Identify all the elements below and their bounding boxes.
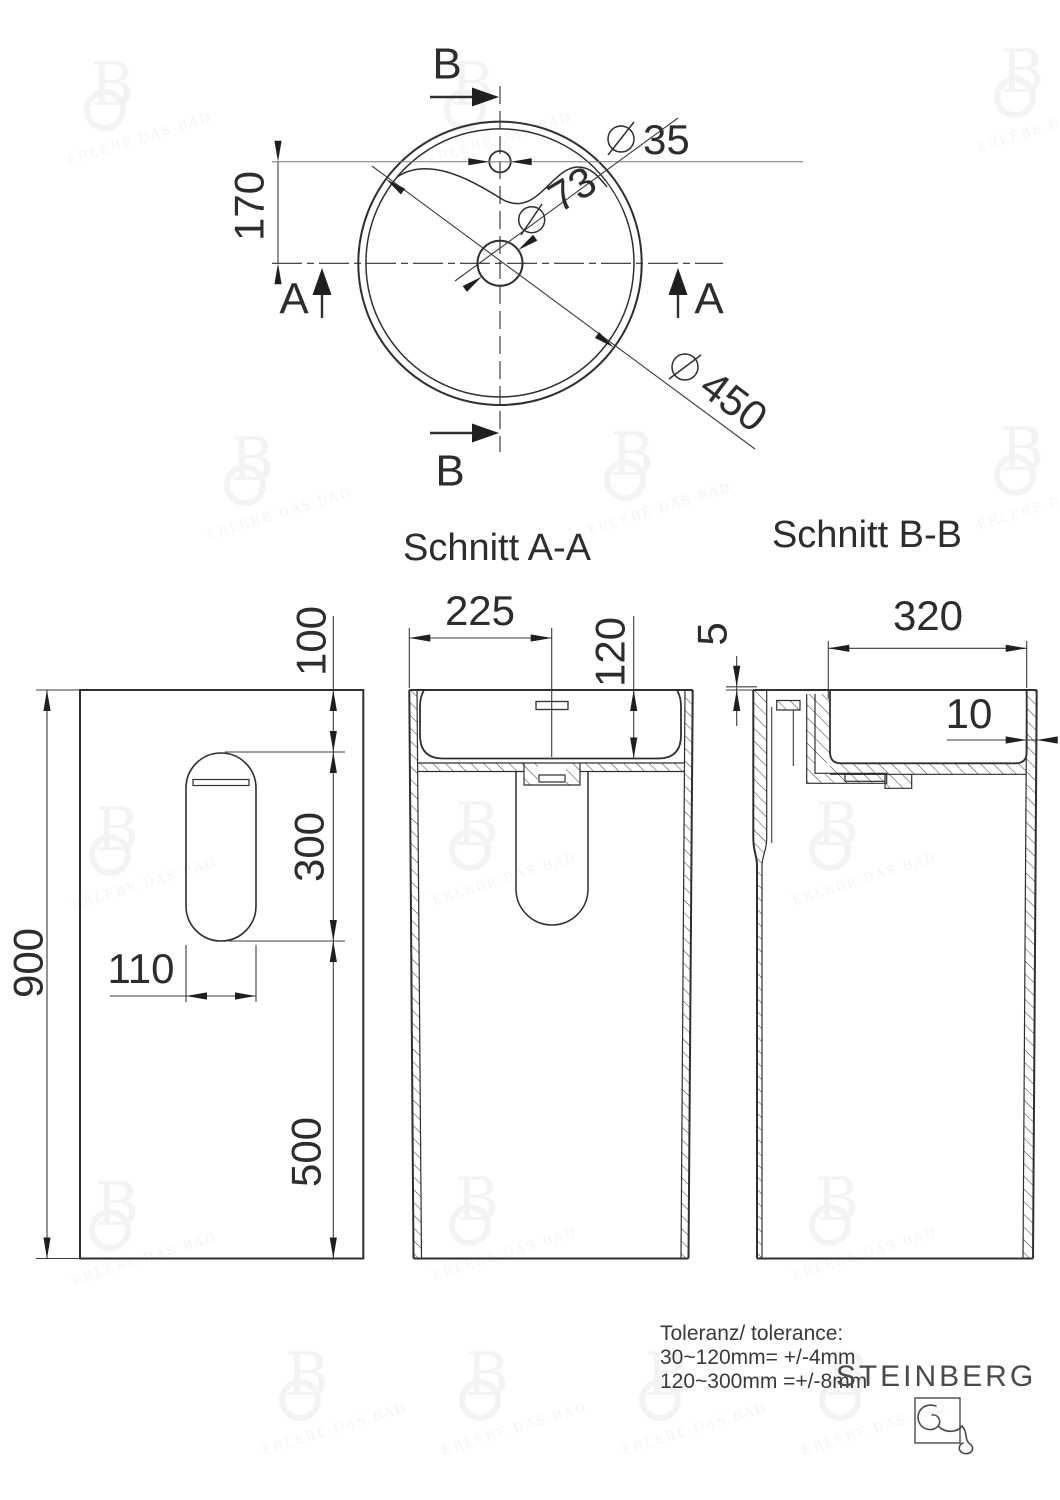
dim-arrow [274, 141, 281, 162]
basin-bowl [830, 690, 1027, 763]
dim-arrow [330, 752, 337, 773]
drain-pipe [516, 772, 588, 925]
dim-225-label: 225 [445, 587, 515, 634]
drain-bracket [193, 780, 249, 786]
dim-arrow [511, 158, 532, 165]
dim-10-label: 10 [946, 690, 993, 737]
dim-100-label: 100 [288, 606, 335, 676]
brand-logo-square [915, 1398, 960, 1443]
dim-arrow [330, 920, 337, 941]
dim-arrow [43, 1238, 50, 1259]
overflow-cover-hatch [777, 701, 800, 711]
dim-500-label: 500 [283, 1117, 330, 1187]
dim-arrow [630, 738, 637, 759]
dim-170-label: 170 [226, 171, 273, 241]
section-arrow [669, 268, 688, 295]
dim-arrow [235, 992, 256, 999]
dim-120-label: 120 [587, 617, 634, 687]
section-a-letter: A [694, 275, 724, 324]
floor-step-hatch [885, 774, 912, 788]
section-arrow [472, 88, 499, 107]
rear-view: 900 100 300 500 110 [5, 606, 364, 1259]
dim-arrow [733, 666, 740, 687]
basin-floor-hatch [830, 763, 1027, 774]
rear-slot [186, 753, 256, 941]
basin-floor-hatch [580, 763, 684, 772]
section-bb-view: 320 5 10 [689, 592, 1059, 1259]
dim-arrow [409, 634, 430, 641]
dim-dia35-label: 35 [643, 116, 690, 163]
dim-arrow [186, 992, 207, 999]
dim-320-label: 320 [893, 592, 963, 639]
dim-arrow [468, 158, 489, 165]
dim-arrow [1037, 736, 1058, 743]
section-aa-view: 225 120 [409, 587, 692, 1259]
dim-dia450-label: 450 [692, 361, 776, 441]
section-bb-title: Schnitt B-B [772, 514, 962, 556]
technical-drawing: 35 170 450 73 B B [0, 0, 1060, 1500]
dim-arrow [330, 941, 337, 962]
brand-name: STEINBERG [836, 1360, 1036, 1393]
diameter-symbol-icon [669, 355, 701, 379]
dim-300-label: 300 [286, 812, 333, 882]
dim-arrow [330, 690, 337, 711]
dim-arrow [1006, 645, 1027, 652]
tolerance-line2: 30~120mm= +/-4mm [660, 1346, 856, 1369]
diameter-symbol-icon [608, 122, 634, 155]
section-aa-title: Schnitt A-A [403, 527, 592, 569]
dim-arrow [1006, 736, 1027, 743]
drain-flange [539, 775, 565, 782]
dim-5-label: 5 [689, 622, 736, 645]
top-view: 35 170 450 73 B B [226, 40, 804, 496]
dim-arrow [630, 690, 637, 711]
section-b-letter: B [432, 40, 461, 89]
brand-drain-icon [918, 1405, 973, 1454]
dim-arrow [531, 634, 552, 641]
drain-recess-hatch [566, 763, 580, 785]
dim-arrow [330, 731, 337, 752]
basin-floor-hatch [417, 763, 524, 772]
section-arrow [472, 424, 499, 443]
brand-block: STEINBERG [836, 1360, 1036, 1454]
tolerance-line1: Toleranz/ tolerance: [660, 1322, 843, 1345]
overflow-notch [606, 181, 623, 209]
dim-900-label: 900 [5, 928, 52, 998]
dim-110-label: 110 [108, 945, 175, 992]
dim-arrow [330, 1238, 337, 1259]
section-arrow [313, 268, 332, 295]
section-b-letter: B [435, 447, 464, 496]
dim-arrow [43, 690, 50, 711]
dim-arrow [733, 690, 740, 711]
basin-bowl [420, 690, 681, 759]
drawing-page: B ERLEBE DAS BAD B ERLEBE DAS BAD B ERLE… [0, 0, 1060, 1500]
section-a-letter: A [279, 275, 309, 324]
dim-arrow [828, 645, 849, 652]
rear-wall-hatch [753, 690, 766, 1259]
basin-back-wall-hatch [815, 694, 830, 763]
drain-recess-hatch [524, 763, 538, 785]
